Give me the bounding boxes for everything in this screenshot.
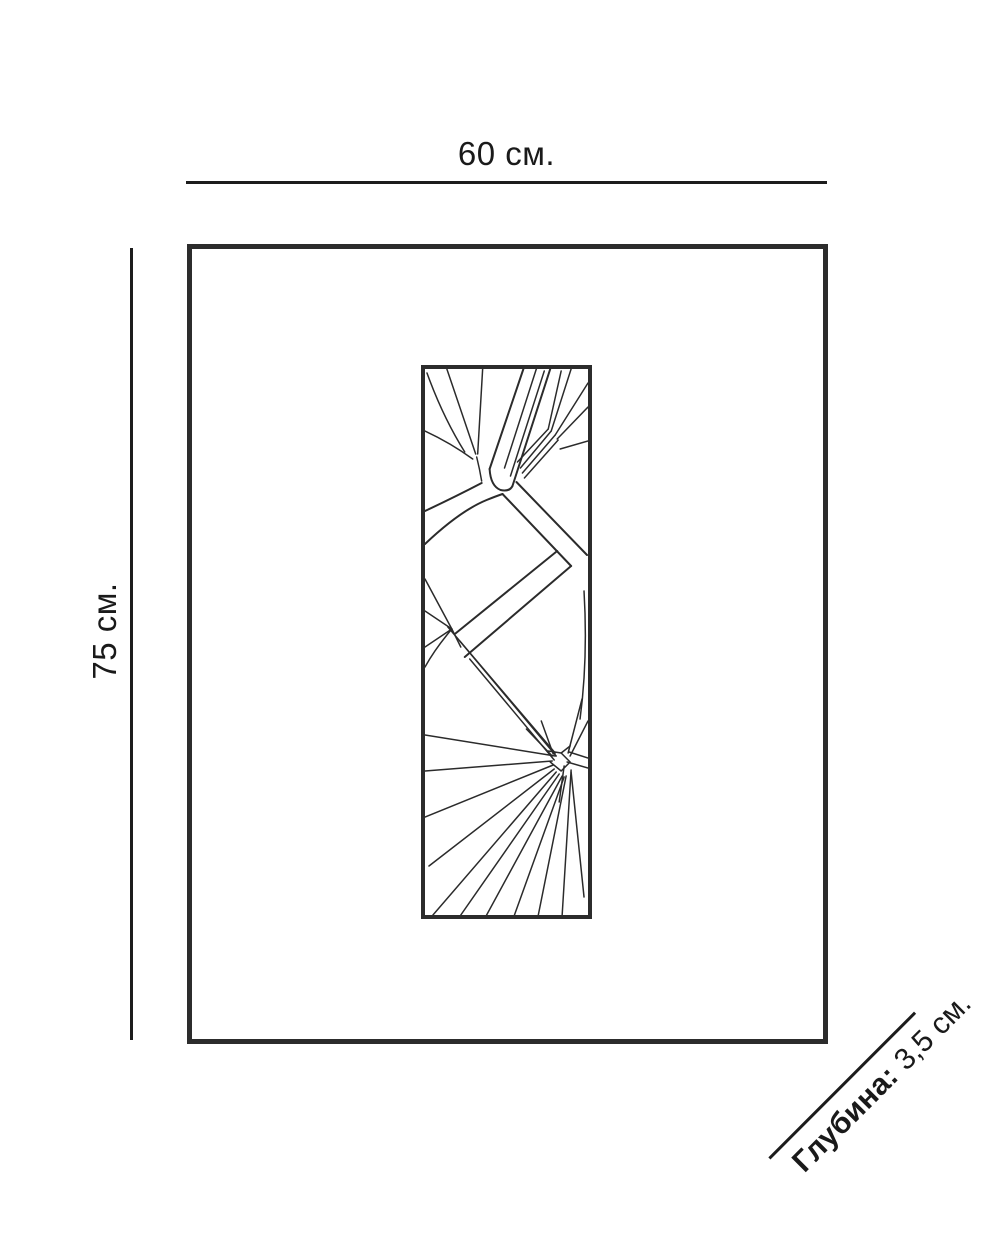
- depth-label-value: 3,5 см.: [888, 987, 978, 1077]
- height-dimension-label: 75 см.: [87, 565, 123, 697]
- frame-inner-rect: [421, 365, 592, 919]
- height-dimension-line: [130, 248, 133, 1040]
- depth-label-title: Глубина:: [786, 1060, 905, 1179]
- width-dimension-label: 60 см.: [186, 136, 827, 172]
- frame-outer-rect: [187, 244, 828, 1044]
- palm-leaf-line-art-icon: [425, 369, 588, 915]
- dimension-diagram: 60 см. 75 см.: [0, 0, 1000, 1250]
- width-dimension-line: [186, 181, 827, 184]
